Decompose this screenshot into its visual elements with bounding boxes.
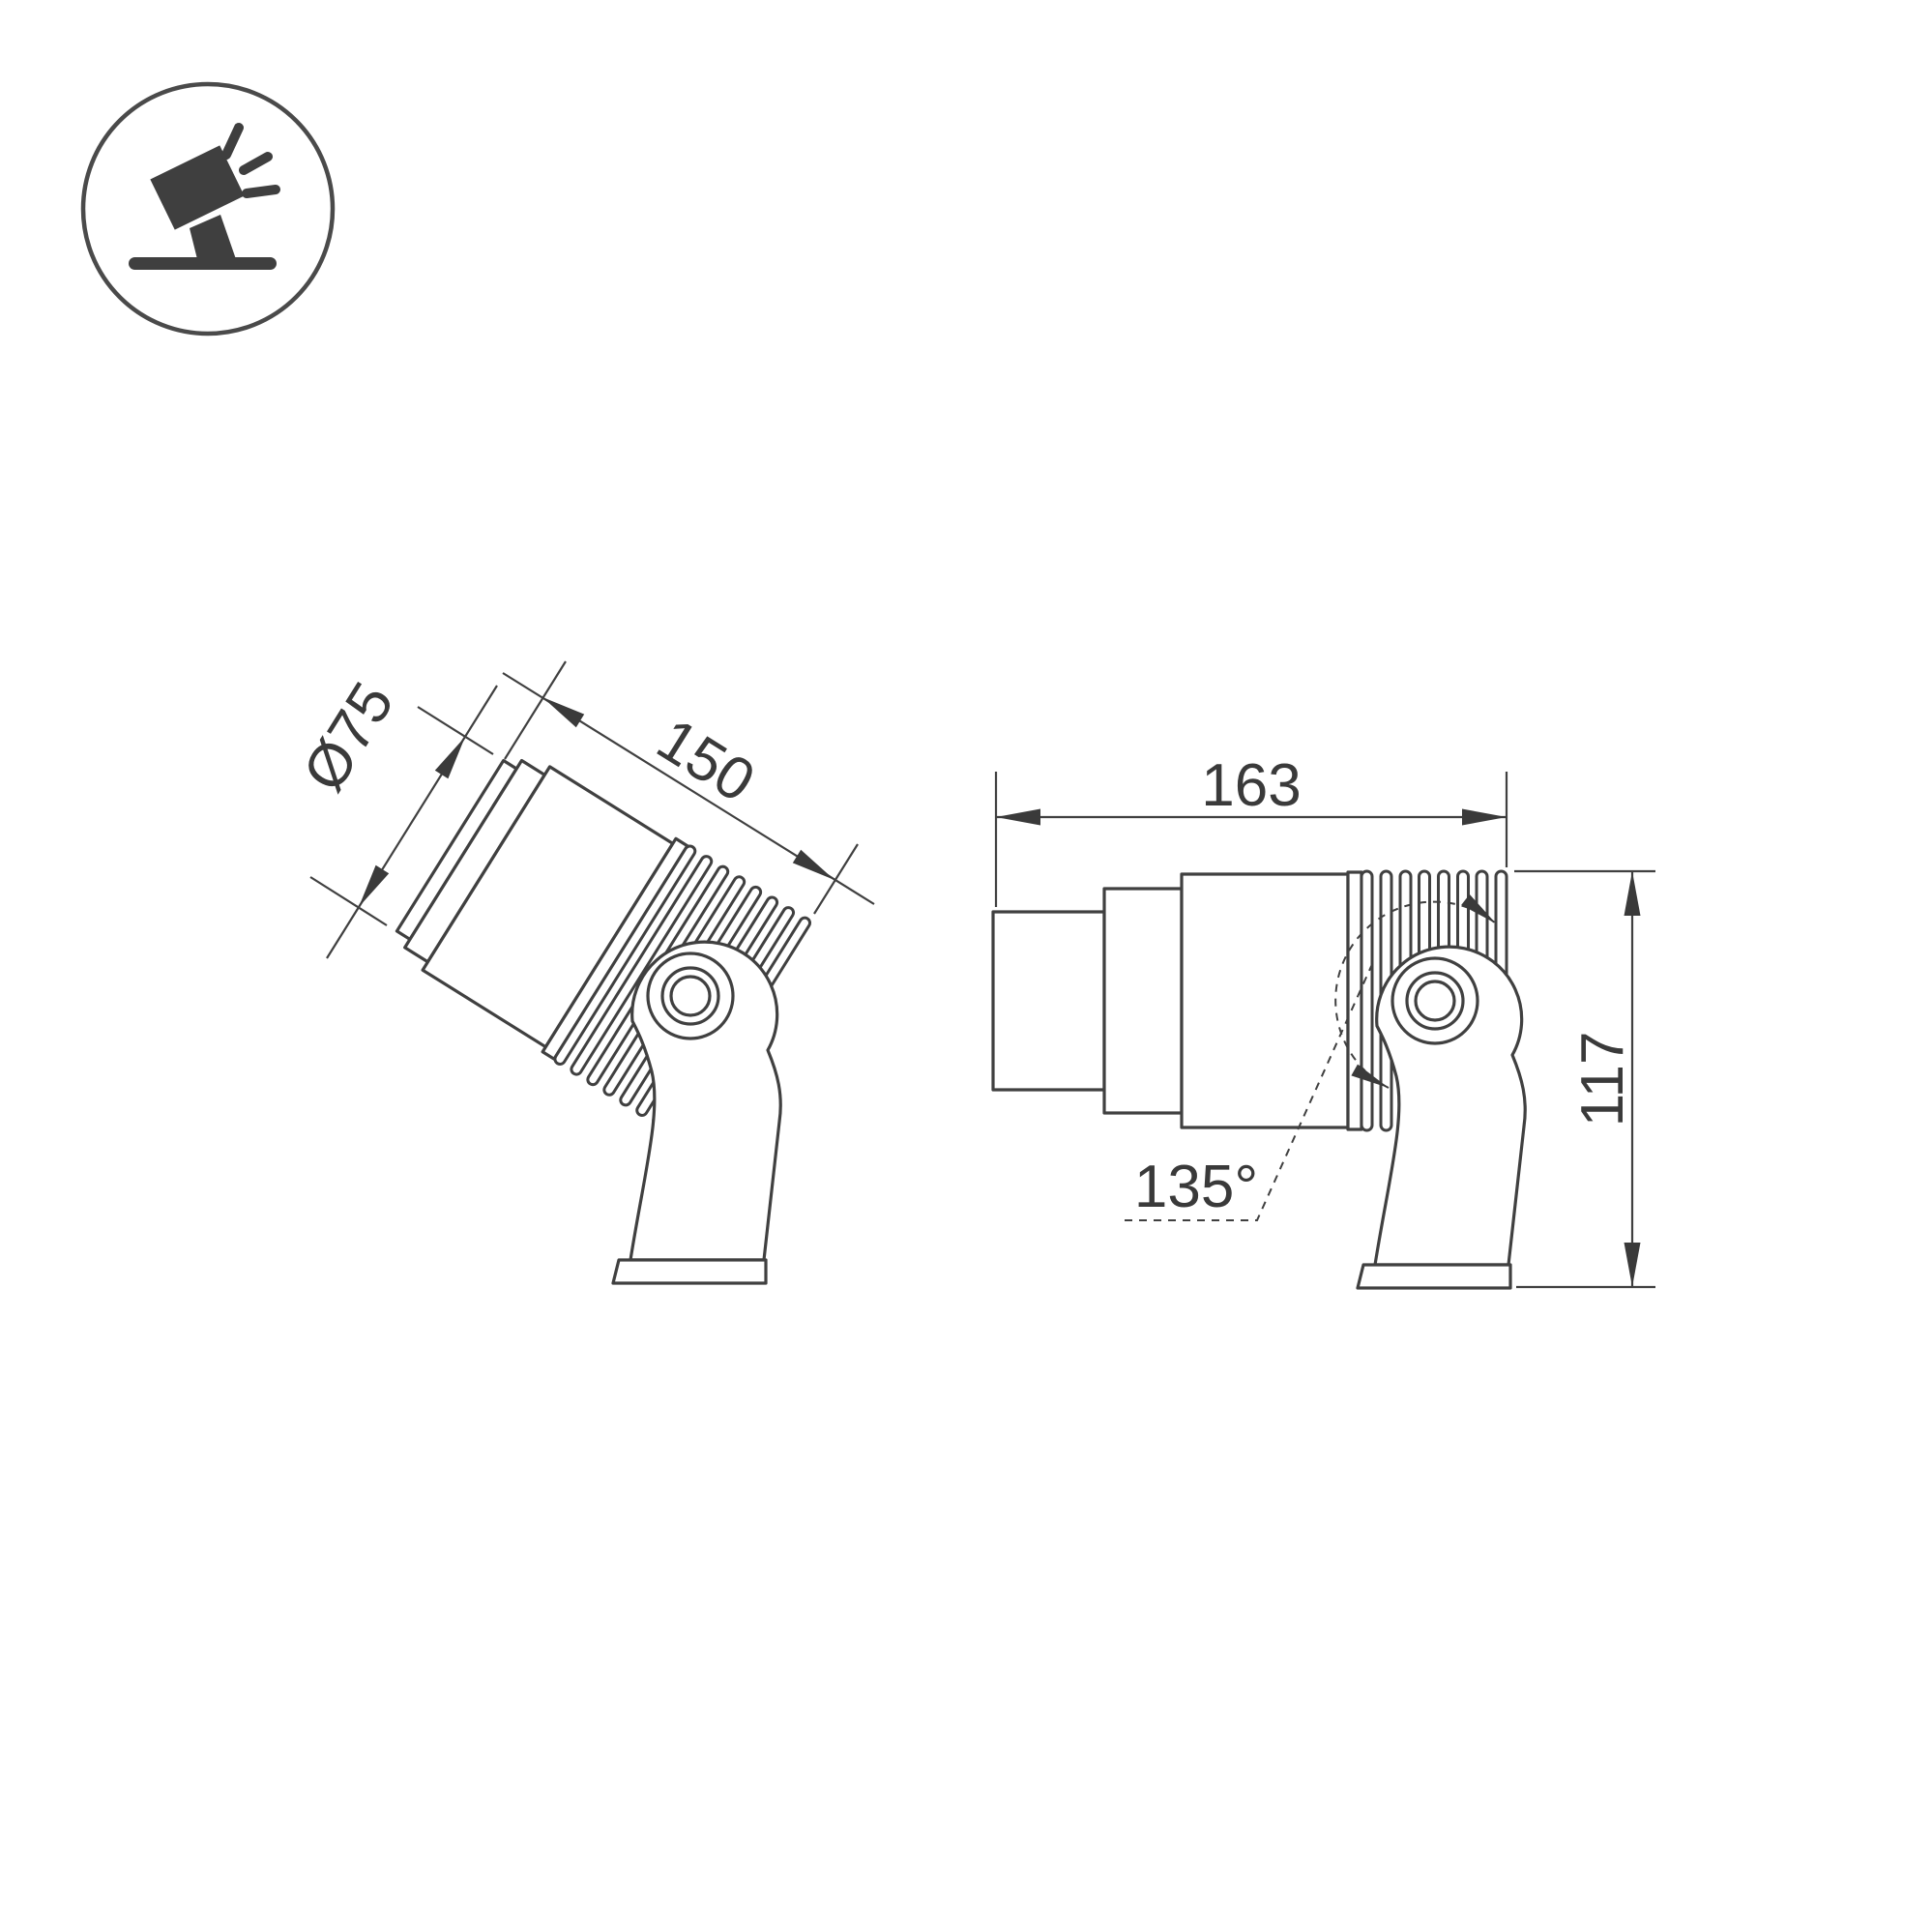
diameter-label: Ø75 bbox=[290, 671, 407, 803]
base-plate bbox=[1358, 1265, 1510, 1288]
pivot-ring-inner bbox=[1416, 981, 1454, 1020]
base-plate bbox=[613, 1260, 766, 1283]
lens-bezel bbox=[1104, 889, 1182, 1113]
dim-arrow bbox=[542, 697, 584, 727]
icon-lamp-base bbox=[129, 257, 277, 270]
dim-arrow bbox=[359, 865, 389, 907]
lens-cap bbox=[993, 912, 1104, 1090]
length-label: 163 bbox=[1201, 752, 1301, 819]
angle-label: 135° bbox=[1134, 1154, 1258, 1220]
dim-extension-line bbox=[505, 661, 566, 759]
dim-arrow bbox=[435, 737, 465, 778]
right-view: 135° 163 117 bbox=[993, 752, 1655, 1288]
dim-arrow bbox=[1625, 871, 1641, 916]
height-label: 117 bbox=[1569, 1032, 1636, 1127]
icon-light-ray bbox=[247, 190, 276, 193]
dim-arrow bbox=[793, 850, 834, 880]
dim-arrow bbox=[1462, 809, 1507, 826]
heatsink-flange bbox=[1348, 872, 1361, 1129]
heatsink-fin bbox=[1361, 871, 1372, 1130]
dim-arrow bbox=[996, 809, 1040, 826]
pivot-ring-inner bbox=[671, 977, 710, 1015]
dim-arrow bbox=[1625, 1243, 1641, 1287]
dim-extension-line bbox=[418, 707, 493, 754]
height-dimension-117: 117 bbox=[1514, 871, 1655, 1287]
length-label: 150 bbox=[646, 706, 766, 815]
tilted-spotlight-icon bbox=[83, 84, 333, 334]
left-view: Ø75 150 bbox=[290, 661, 874, 1283]
dim-extension-line bbox=[814, 844, 858, 914]
lamp-body bbox=[1182, 874, 1348, 1127]
technical-drawing: Ø75 150 bbox=[0, 0, 1932, 1932]
